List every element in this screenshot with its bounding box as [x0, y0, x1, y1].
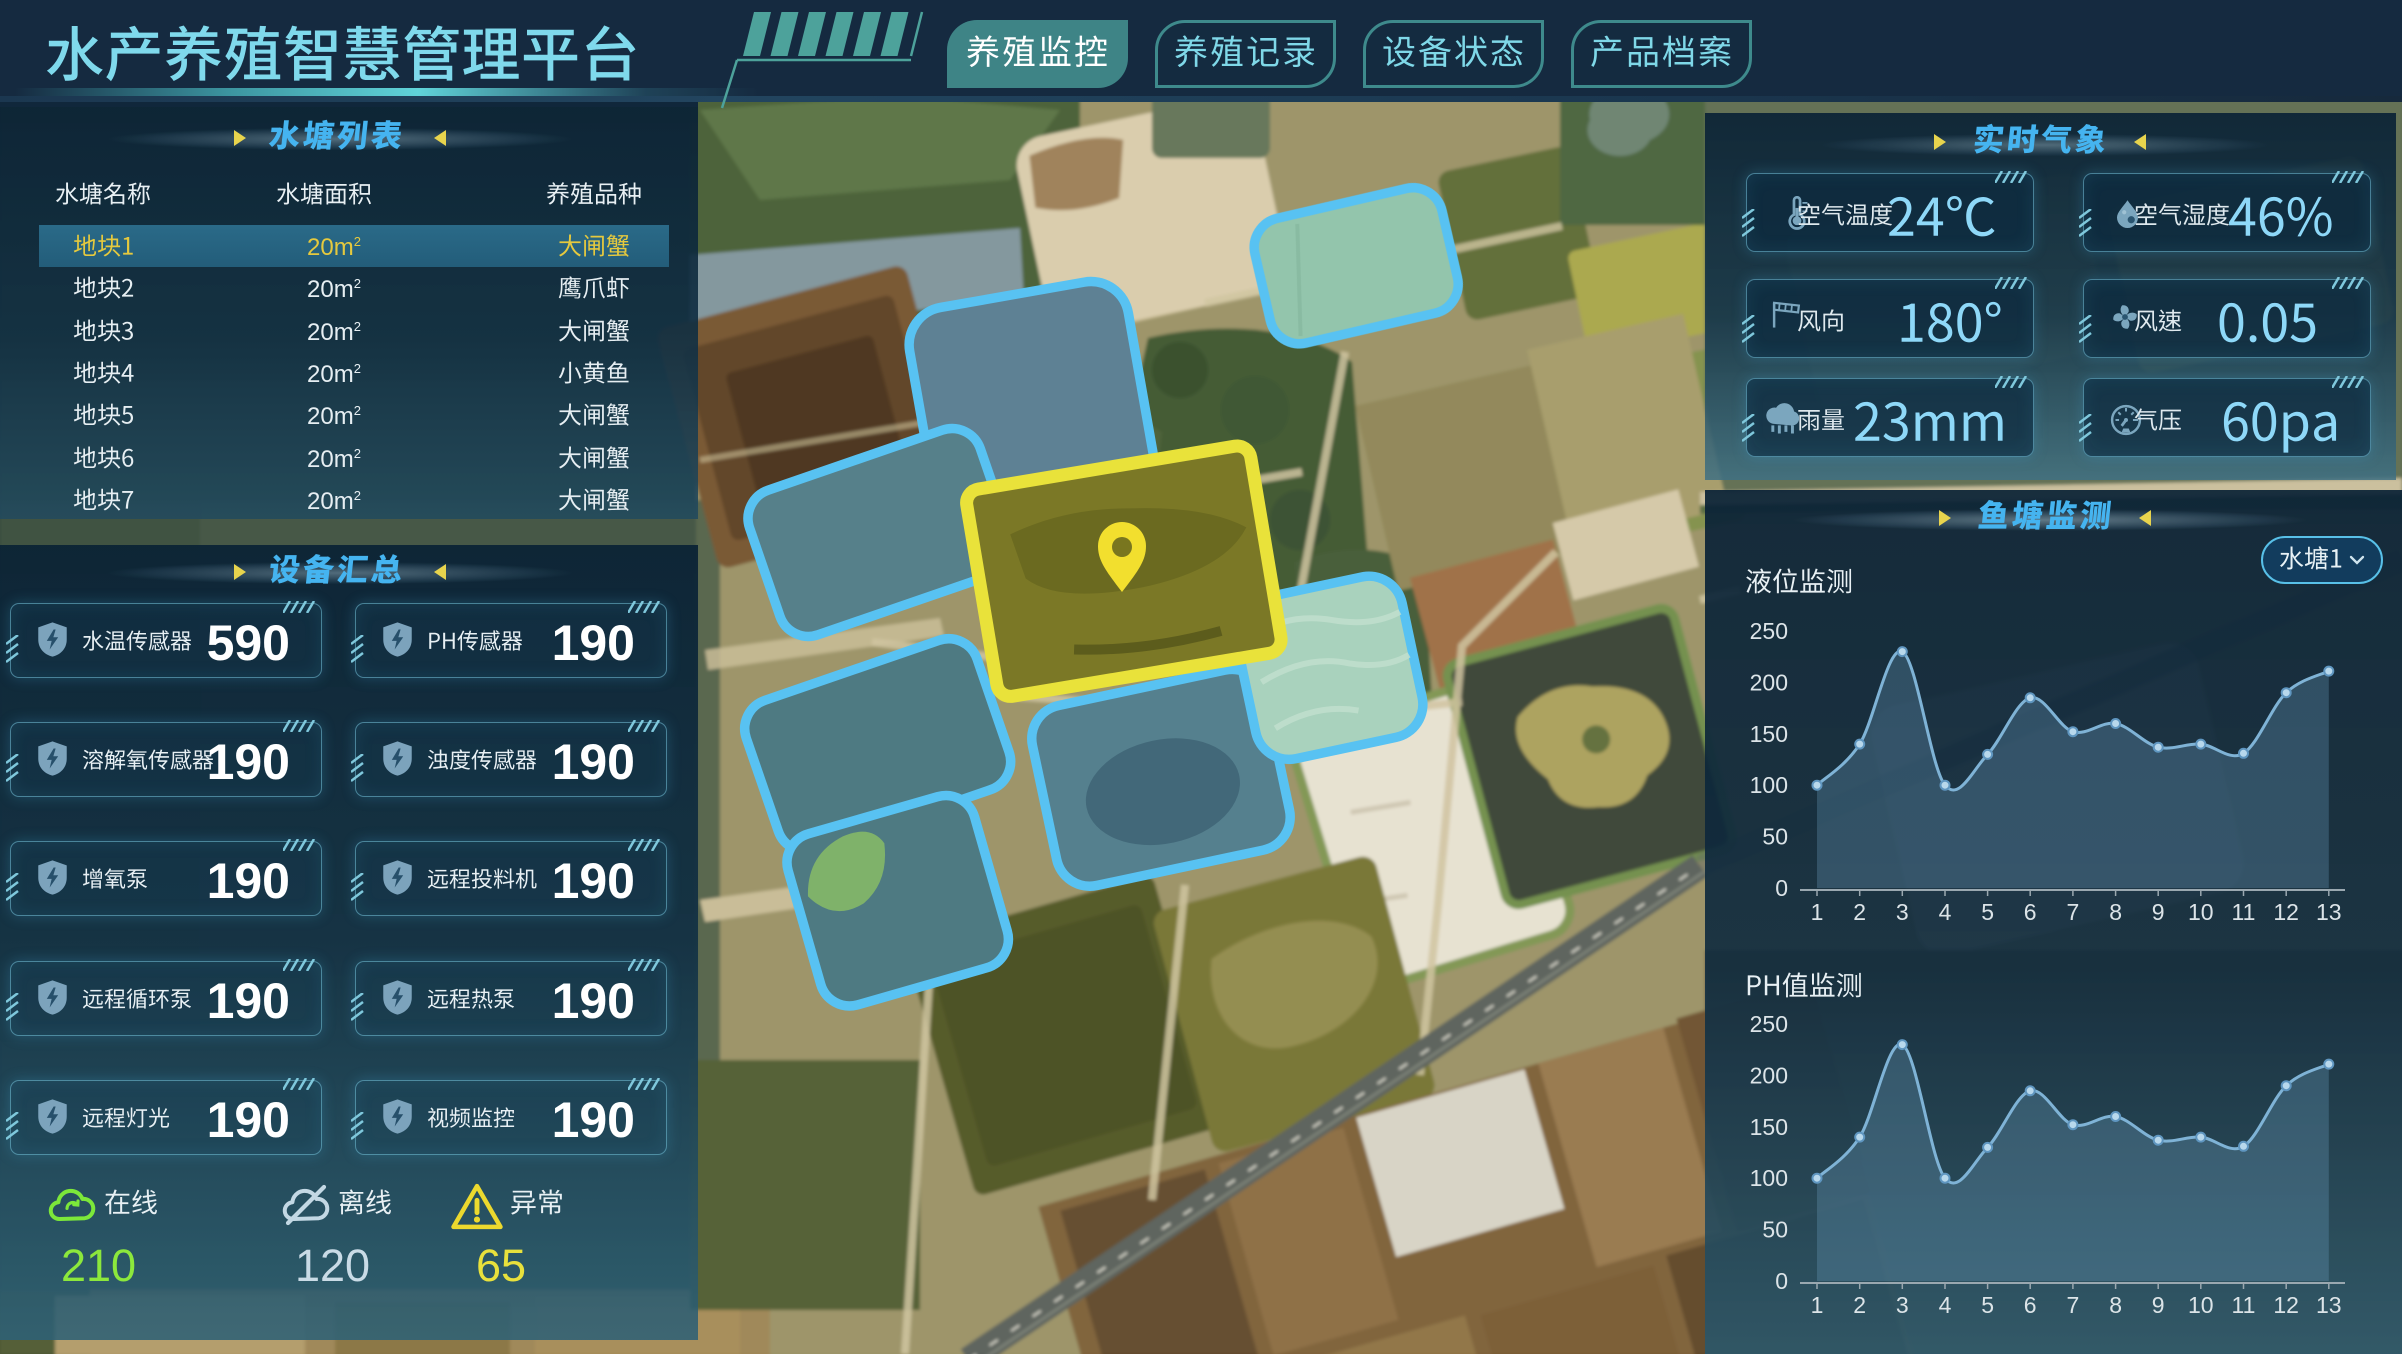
- svg-text:4: 4: [1939, 1292, 1952, 1318]
- svg-text:5: 5: [1981, 1292, 1994, 1318]
- svg-text:250: 250: [1750, 618, 1788, 644]
- svg-text:13: 13: [2316, 899, 2342, 925]
- svg-text:6: 6: [2024, 899, 2037, 925]
- svg-text:7: 7: [2067, 1292, 2080, 1318]
- svg-text:9: 9: [2152, 1292, 2165, 1318]
- svg-text:1: 1: [1811, 1292, 1824, 1318]
- svg-text:10: 10: [2188, 899, 2214, 925]
- svg-text:5: 5: [1981, 899, 1994, 925]
- svg-text:12: 12: [2273, 1292, 2299, 1318]
- svg-text:9: 9: [2152, 899, 2165, 925]
- svg-text:11: 11: [2232, 1292, 2256, 1318]
- svg-text:3: 3: [1896, 1292, 1909, 1318]
- svg-text:100: 100: [1750, 772, 1788, 798]
- svg-text:100: 100: [1750, 1165, 1788, 1191]
- svg-text:50: 50: [1762, 1217, 1788, 1243]
- svg-text:0: 0: [1775, 875, 1788, 901]
- svg-text:8: 8: [2109, 1292, 2122, 1318]
- svg-text:2: 2: [1853, 899, 1866, 925]
- svg-text:1: 1: [1811, 899, 1824, 925]
- svg-text:200: 200: [1750, 669, 1788, 695]
- svg-text:12: 12: [2273, 899, 2299, 925]
- svg-text:13: 13: [2316, 1292, 2342, 1318]
- svg-text:7: 7: [2067, 899, 2080, 925]
- svg-text:250: 250: [1750, 1011, 1788, 1037]
- svg-text:10: 10: [2188, 1292, 2214, 1318]
- svg-text:6: 6: [2024, 1292, 2037, 1318]
- svg-text:3: 3: [1896, 899, 1909, 925]
- svg-text:150: 150: [1750, 721, 1788, 747]
- svg-text:150: 150: [1750, 1114, 1788, 1140]
- svg-text:2: 2: [1853, 1292, 1866, 1318]
- svg-text:0: 0: [1775, 1268, 1788, 1294]
- svg-text:11: 11: [2232, 899, 2256, 925]
- svg-text:8: 8: [2109, 899, 2122, 925]
- svg-text:200: 200: [1750, 1062, 1788, 1088]
- svg-text:4: 4: [1939, 899, 1952, 925]
- svg-text:50: 50: [1762, 824, 1788, 850]
